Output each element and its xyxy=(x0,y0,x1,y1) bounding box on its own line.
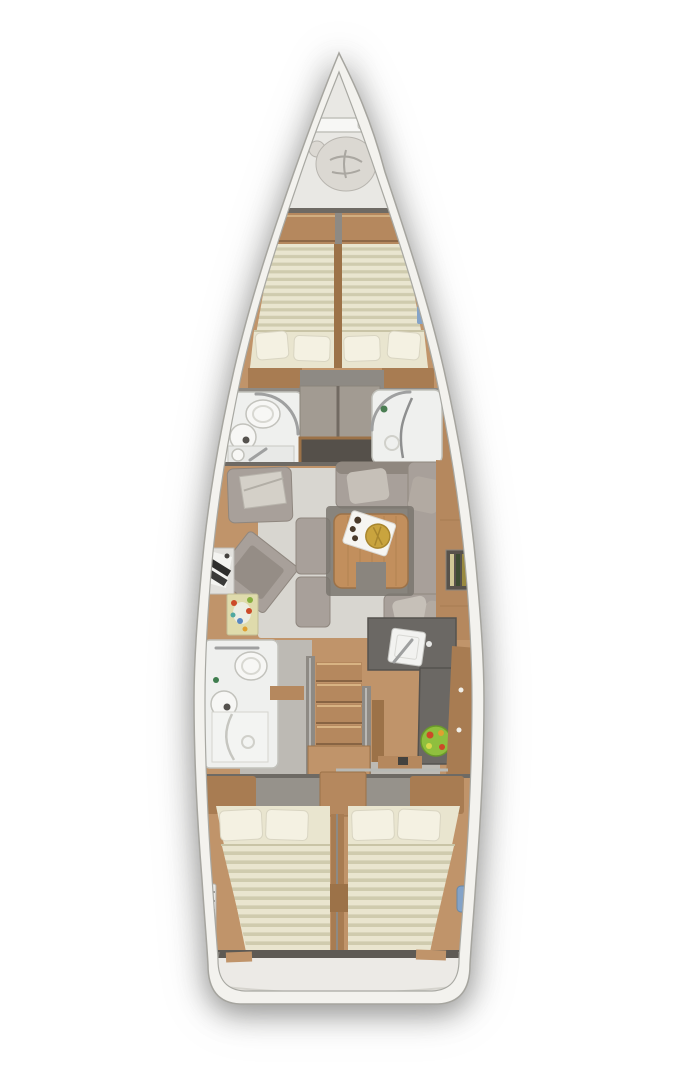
shelf-split xyxy=(335,213,342,244)
floor-plan-stage xyxy=(0,0,675,1080)
chart-rug-icon xyxy=(227,594,258,635)
berth-divider xyxy=(334,244,342,368)
aft-head-port xyxy=(204,640,278,768)
salon-table xyxy=(326,506,414,596)
wardrobe-midship xyxy=(300,386,380,466)
aft-wall-shadow-port xyxy=(250,778,324,808)
galley-band xyxy=(196,618,484,780)
stern-deck xyxy=(206,958,472,992)
aft-cabins xyxy=(196,772,484,958)
salon-armchair-forward xyxy=(227,467,293,523)
forward-shower-starboard xyxy=(372,390,442,464)
fruit-bowl-icon xyxy=(421,726,451,756)
shower-tray xyxy=(212,712,268,762)
table-leg xyxy=(356,562,386,590)
toilet-icon xyxy=(235,652,267,680)
stair-side-panel xyxy=(372,700,384,762)
yacht-floor-plan xyxy=(0,0,675,1080)
midship-heads xyxy=(198,380,480,466)
shower-mixer-dot xyxy=(381,406,388,413)
aft-wall-shadow-starboard xyxy=(366,778,412,806)
salon-bench xyxy=(296,518,330,627)
toilet-icon xyxy=(246,400,280,428)
stern-wood-port xyxy=(226,952,252,963)
stair-side-shelf xyxy=(270,686,304,700)
stern-wood-starboard xyxy=(416,949,446,960)
